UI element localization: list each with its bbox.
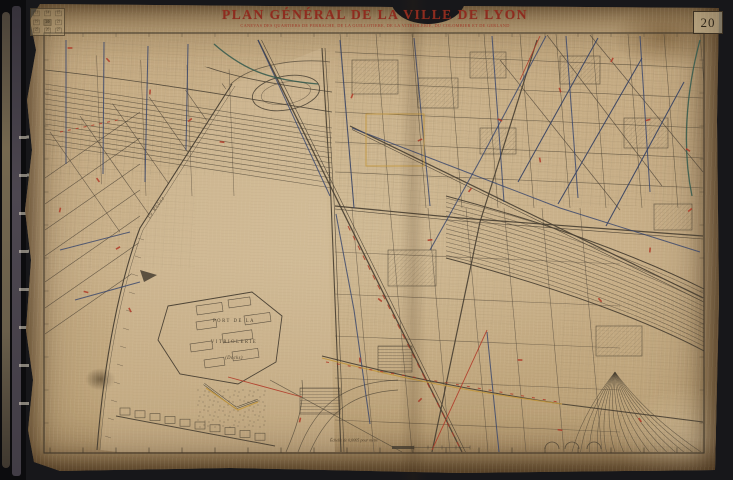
stamp-cell: 13 [33, 11, 40, 16]
map-title: PLAN GÉNÉRAL DE LA VILLE DE LYON [180, 7, 570, 23]
map-content [45, 34, 714, 452]
stamp-cell: 26 [44, 28, 51, 33]
stamp-cell-current: 20 [44, 19, 52, 25]
stamp-cell: 21 [55, 19, 62, 24]
sheet-number-box: 20 [693, 11, 723, 34]
scale-caption: Échelle de 0,0005 pour mètre [330, 439, 378, 443]
port-label-line1: PORT DE LA [198, 319, 270, 324]
stamp-cell: 15 [55, 11, 62, 16]
map-drawing [0, 0, 733, 480]
stamp-cell: 25 [33, 28, 40, 33]
viaduct-arch [545, 442, 559, 449]
index-assemblage-stamp: 13 14 15 19 20 21 25 26 27 [30, 8, 65, 36]
scanned-atlas-page: PLAN GÉNÉRAL DE LA VILLE DE LYON CANEVAS… [0, 0, 733, 480]
stamp-cell: 27 [55, 28, 62, 33]
port-label-line2: VITRIOLERIE [198, 340, 270, 345]
map-subtitle: CANEVAS DES QUARTIERS DE PERRACHE, DE LA… [220, 24, 530, 28]
sheet-number: 20 [701, 15, 716, 31]
stamp-cell: 14 [44, 11, 51, 16]
stamp-cell: 19 [33, 19, 40, 24]
scale-bar [392, 446, 470, 450]
port-label-docks: (Docks) [198, 356, 270, 361]
